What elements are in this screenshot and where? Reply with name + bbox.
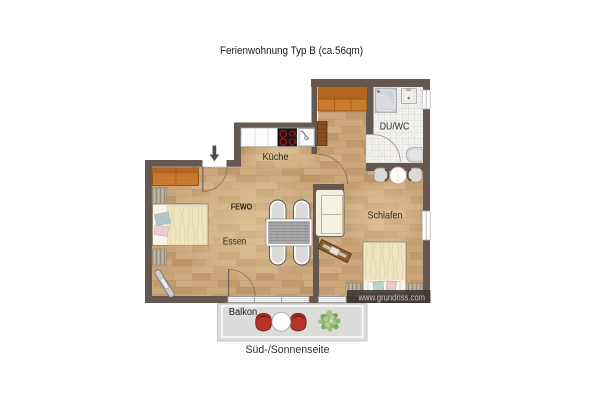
- svg-text:Schlafen: Schlafen: [368, 211, 403, 222]
- svg-text:Essen: Essen: [223, 237, 247, 248]
- svg-text:FEWO: FEWO: [231, 203, 253, 212]
- svg-text:DU/WC: DU/WC: [380, 122, 410, 133]
- svg-text:Ferienwohnung Typ B (ca.56qm): Ferienwohnung Typ B (ca.56qm): [220, 45, 363, 57]
- svg-text:www.grundriss.com: www.grundriss.com: [358, 293, 425, 303]
- svg-text:Süd-/Sonnenseite: Süd-/Sonnenseite: [246, 344, 330, 356]
- svg-text:Küche: Küche: [263, 152, 290, 163]
- svg-text:Balkon: Balkon: [229, 307, 258, 318]
